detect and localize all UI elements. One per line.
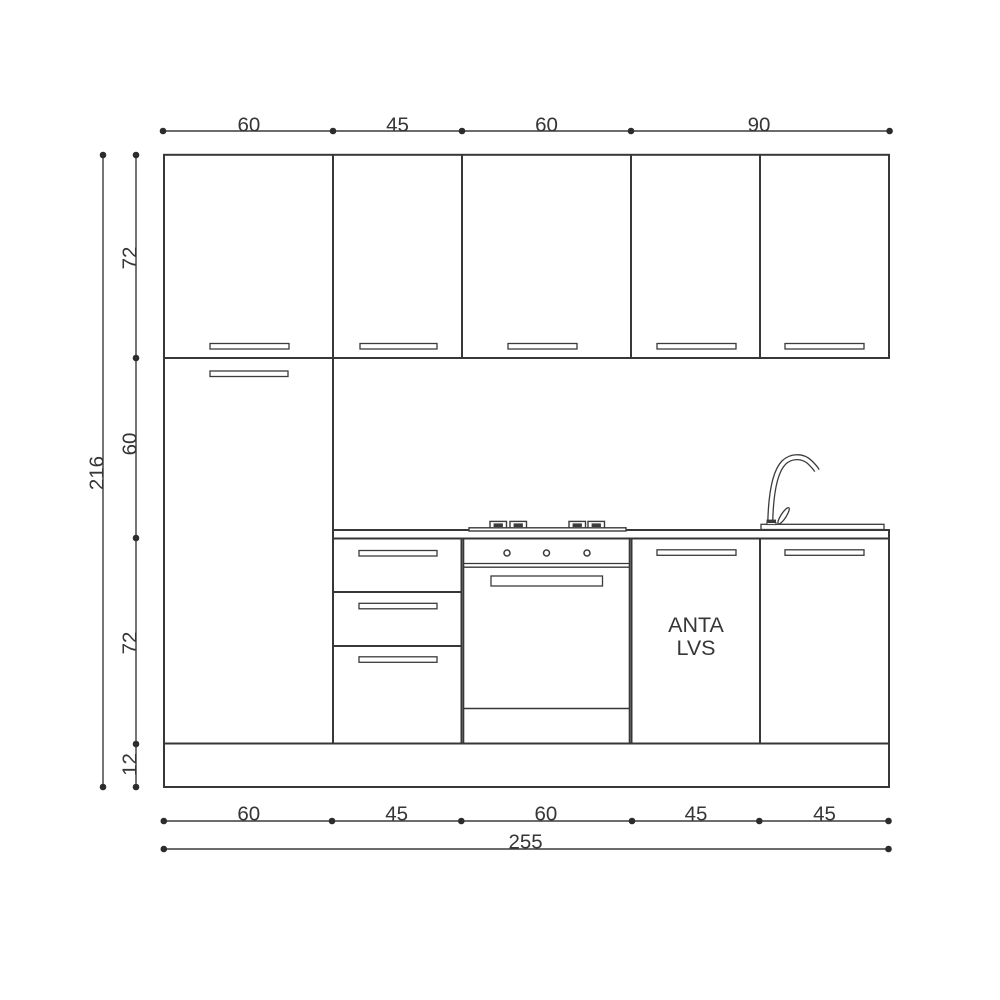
svg-text:45: 45 — [386, 113, 409, 136]
svg-text:60: 60 — [118, 433, 141, 456]
svg-text:90: 90 — [748, 113, 771, 136]
svg-text:45: 45 — [685, 802, 708, 825]
svg-text:45: 45 — [385, 802, 408, 825]
svg-text:LVS: LVS — [676, 636, 715, 660]
svg-text:72: 72 — [118, 247, 141, 270]
svg-text:60: 60 — [535, 113, 558, 136]
svg-text:216: 216 — [85, 456, 108, 490]
svg-text:45: 45 — [813, 802, 836, 825]
svg-text:12: 12 — [118, 753, 141, 776]
svg-text:60: 60 — [237, 802, 260, 825]
svg-text:ANTA: ANTA — [668, 613, 724, 637]
svg-text:72: 72 — [118, 632, 141, 655]
svg-text:60: 60 — [237, 113, 260, 136]
svg-text:60: 60 — [534, 802, 557, 825]
svg-text:255: 255 — [508, 830, 542, 853]
